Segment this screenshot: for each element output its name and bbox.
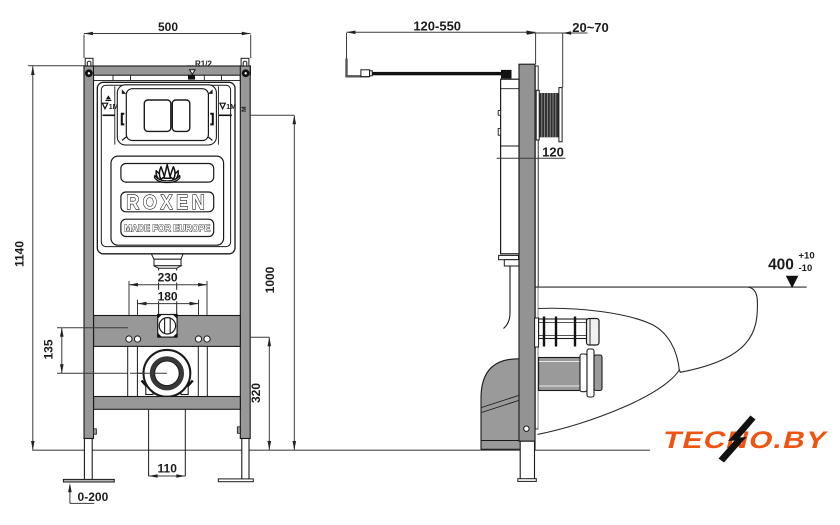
svg-text:20~70: 20~70 <box>572 20 609 35</box>
svg-text:1M: 1M <box>226 104 236 111</box>
svg-text:MADE FOR EUROPE: MADE FOR EUROPE <box>124 223 210 234</box>
svg-text:R1/2: R1/2 <box>195 60 212 69</box>
svg-text:1000: 1000 <box>263 266 277 293</box>
svg-text:ROXEN: ROXEN <box>126 192 208 214</box>
svg-text:230: 230 <box>158 271 178 285</box>
svg-text:1140: 1140 <box>13 241 27 267</box>
svg-text:180: 180 <box>158 290 178 304</box>
svg-text:400: 400 <box>768 257 794 274</box>
svg-text:135: 135 <box>42 339 56 359</box>
svg-text:110: 110 <box>158 462 178 476</box>
svg-text:...: ... <box>187 60 194 69</box>
svg-text:120-550: 120-550 <box>413 19 461 34</box>
svg-text:320: 320 <box>249 383 263 403</box>
svg-text:-10: -10 <box>799 263 813 274</box>
svg-text:+10: +10 <box>799 251 815 262</box>
svg-text:0-200: 0-200 <box>78 490 109 504</box>
svg-text:TECNO.BY: TECNO.BY <box>660 427 831 454</box>
svg-text:M: M <box>241 106 248 111</box>
svg-text:500: 500 <box>158 20 178 34</box>
svg-text:120: 120 <box>542 145 564 160</box>
